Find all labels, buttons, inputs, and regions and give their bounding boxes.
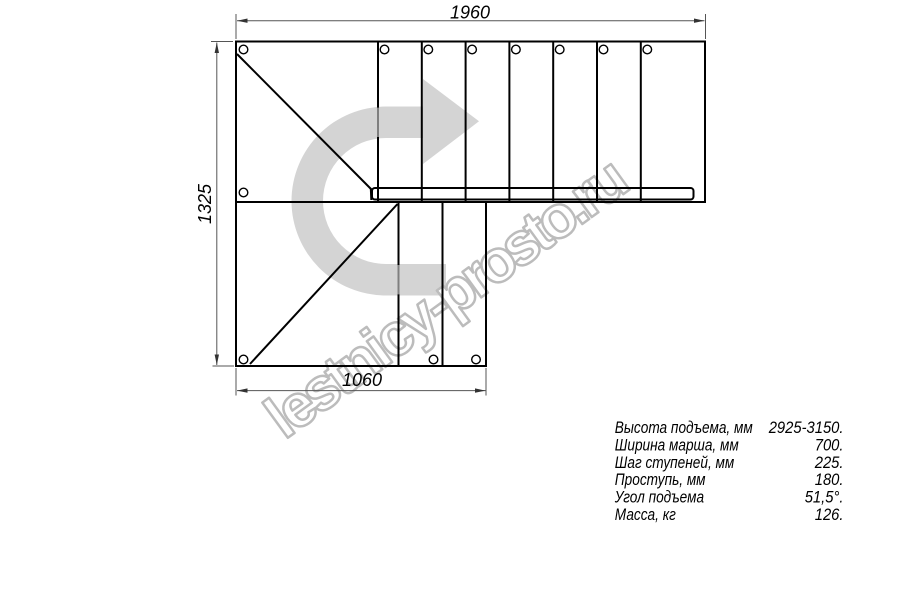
- svg-text:700.: 700.: [815, 437, 844, 455]
- svg-text:1960: 1960: [450, 2, 490, 22]
- svg-text:Проступь, мм: Проступь, мм: [615, 471, 706, 490]
- svg-text:Угол подъема: Угол подъема: [614, 488, 705, 507]
- svg-text:51,5°.: 51,5°.: [805, 489, 844, 507]
- svg-text:126.: 126.: [815, 506, 844, 524]
- svg-text:Масса, кг: Масса, кг: [615, 506, 676, 525]
- svg-text:2925-3150.: 2925-3150.: [768, 419, 844, 437]
- svg-text:225.: 225.: [814, 454, 844, 472]
- svg-text:1325: 1325: [195, 183, 215, 224]
- svg-text:Шаг ступеней, мм: Шаг ступеней, мм: [615, 453, 735, 472]
- svg-text:Ширина марша, мм: Ширина марша, мм: [615, 436, 739, 455]
- svg-text:1060: 1060: [342, 370, 382, 390]
- svg-text:180.: 180.: [815, 471, 844, 489]
- svg-text:Высота подъема, мм: Высота подъема, мм: [615, 419, 753, 438]
